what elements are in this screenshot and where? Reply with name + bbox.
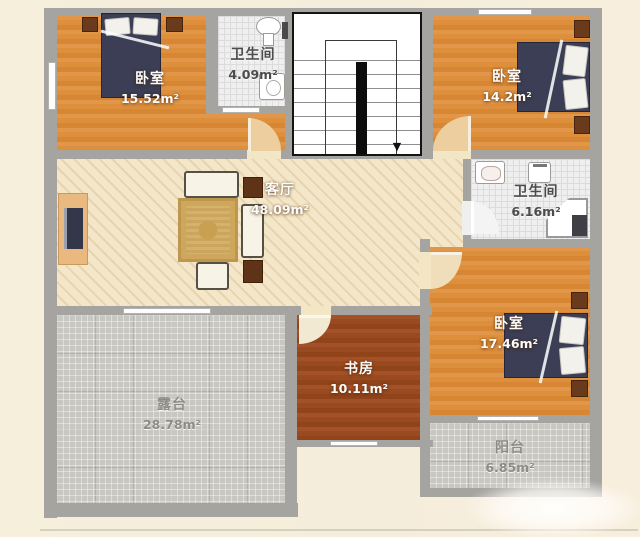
rug <box>178 198 238 262</box>
room-label-study: 书房 10.11m² <box>330 358 388 396</box>
pillow <box>132 17 158 36</box>
wall-terrace-bottom <box>44 503 298 517</box>
side-table <box>243 260 263 283</box>
doorway-bedroom-top-right <box>433 150 471 159</box>
room-name: 卫生间 <box>228 44 277 64</box>
stair-down-arrow-icon: ▼ <box>389 140 405 154</box>
window-bathroom-top <box>222 107 260 113</box>
room-area: 10.11m² <box>330 381 388 396</box>
sink-bowl <box>481 166 501 181</box>
room-area: 4.09m² <box>228 67 277 82</box>
toilet <box>528 162 551 183</box>
nightstand <box>574 20 590 38</box>
bathroom-radiator <box>282 22 288 39</box>
armchair-bottom <box>196 262 229 290</box>
room-label-bedroom-top-left: 卧室 15.52m² <box>121 68 179 106</box>
room-label-terrace: 露台 28.78m² <box>143 394 201 432</box>
room-area: 15.52m² <box>121 91 179 106</box>
wall-right <box>590 8 602 497</box>
room-label-bedroom-top-right: 卧室 14.2m² <box>482 66 531 104</box>
pillow <box>562 78 588 110</box>
pillow <box>559 346 586 375</box>
window-balcony <box>477 416 539 421</box>
toilet-bowl <box>266 80 281 96</box>
toilet-tank <box>533 164 547 167</box>
room-name: 客厅 <box>251 179 309 199</box>
pillow <box>562 45 588 78</box>
duvet-fold <box>539 311 559 384</box>
nightstand <box>82 17 98 32</box>
room-area: 48.09m² <box>251 202 309 217</box>
nightstand <box>166 17 183 32</box>
room-label-bedroom-bottom-right: 卧室 17.46m² <box>480 313 538 351</box>
room-name: 卫生间 <box>511 181 560 201</box>
window-terrace <box>123 308 211 314</box>
room-area: 14.2m² <box>482 89 531 104</box>
doorway-bedroom-bottom-right <box>419 252 431 289</box>
room-name: 卧室 <box>482 66 531 86</box>
pillow <box>559 316 587 345</box>
window-bedroom-top-left <box>48 62 56 110</box>
room-area: 6.16m² <box>511 204 560 219</box>
staircase: ▼ <box>292 12 422 156</box>
room-name: 书房 <box>330 358 388 378</box>
room-label-living-room: 客厅 48.09m² <box>251 179 309 217</box>
tv-icon <box>64 208 83 249</box>
room-name: 卧室 <box>121 68 179 88</box>
duvet-fold <box>544 40 564 119</box>
room-name: 阳台 <box>485 437 534 457</box>
room-name: 卧室 <box>480 313 538 333</box>
room-area: 28.78m² <box>143 417 201 432</box>
tv-console <box>58 193 88 265</box>
room-area: 17.46m² <box>480 336 538 351</box>
room-label-balcony: 阳台 6.85m² <box>485 437 534 475</box>
room-label-bathroom-right: 卫生间 6.16m² <box>511 181 560 219</box>
wall-living-bottom <box>44 306 432 315</box>
stair-center-rail <box>356 62 367 154</box>
nightstand <box>571 292 588 309</box>
wall-bedroom-bathroom-top <box>206 8 218 114</box>
sofa-top <box>184 171 239 198</box>
room-label-bathroom-top: 卫生间 4.09m² <box>228 44 277 82</box>
wall-terrace-study <box>285 306 297 517</box>
floor-plan: ▼ <box>0 0 640 537</box>
window-study <box>330 441 378 446</box>
shower-mat <box>572 215 587 236</box>
doorway-bedroom-top-left <box>247 150 281 159</box>
wall-bathroom-right-bottom <box>463 239 596 247</box>
window-bedroom-top-right <box>478 9 532 15</box>
nightstand <box>571 380 588 397</box>
blurred-watermark <box>468 480 640 537</box>
room-name: 露台 <box>143 394 201 414</box>
room-area: 6.85m² <box>485 460 534 475</box>
sink-counter <box>475 161 505 184</box>
doorway-study <box>301 306 331 315</box>
nightstand <box>574 116 590 134</box>
